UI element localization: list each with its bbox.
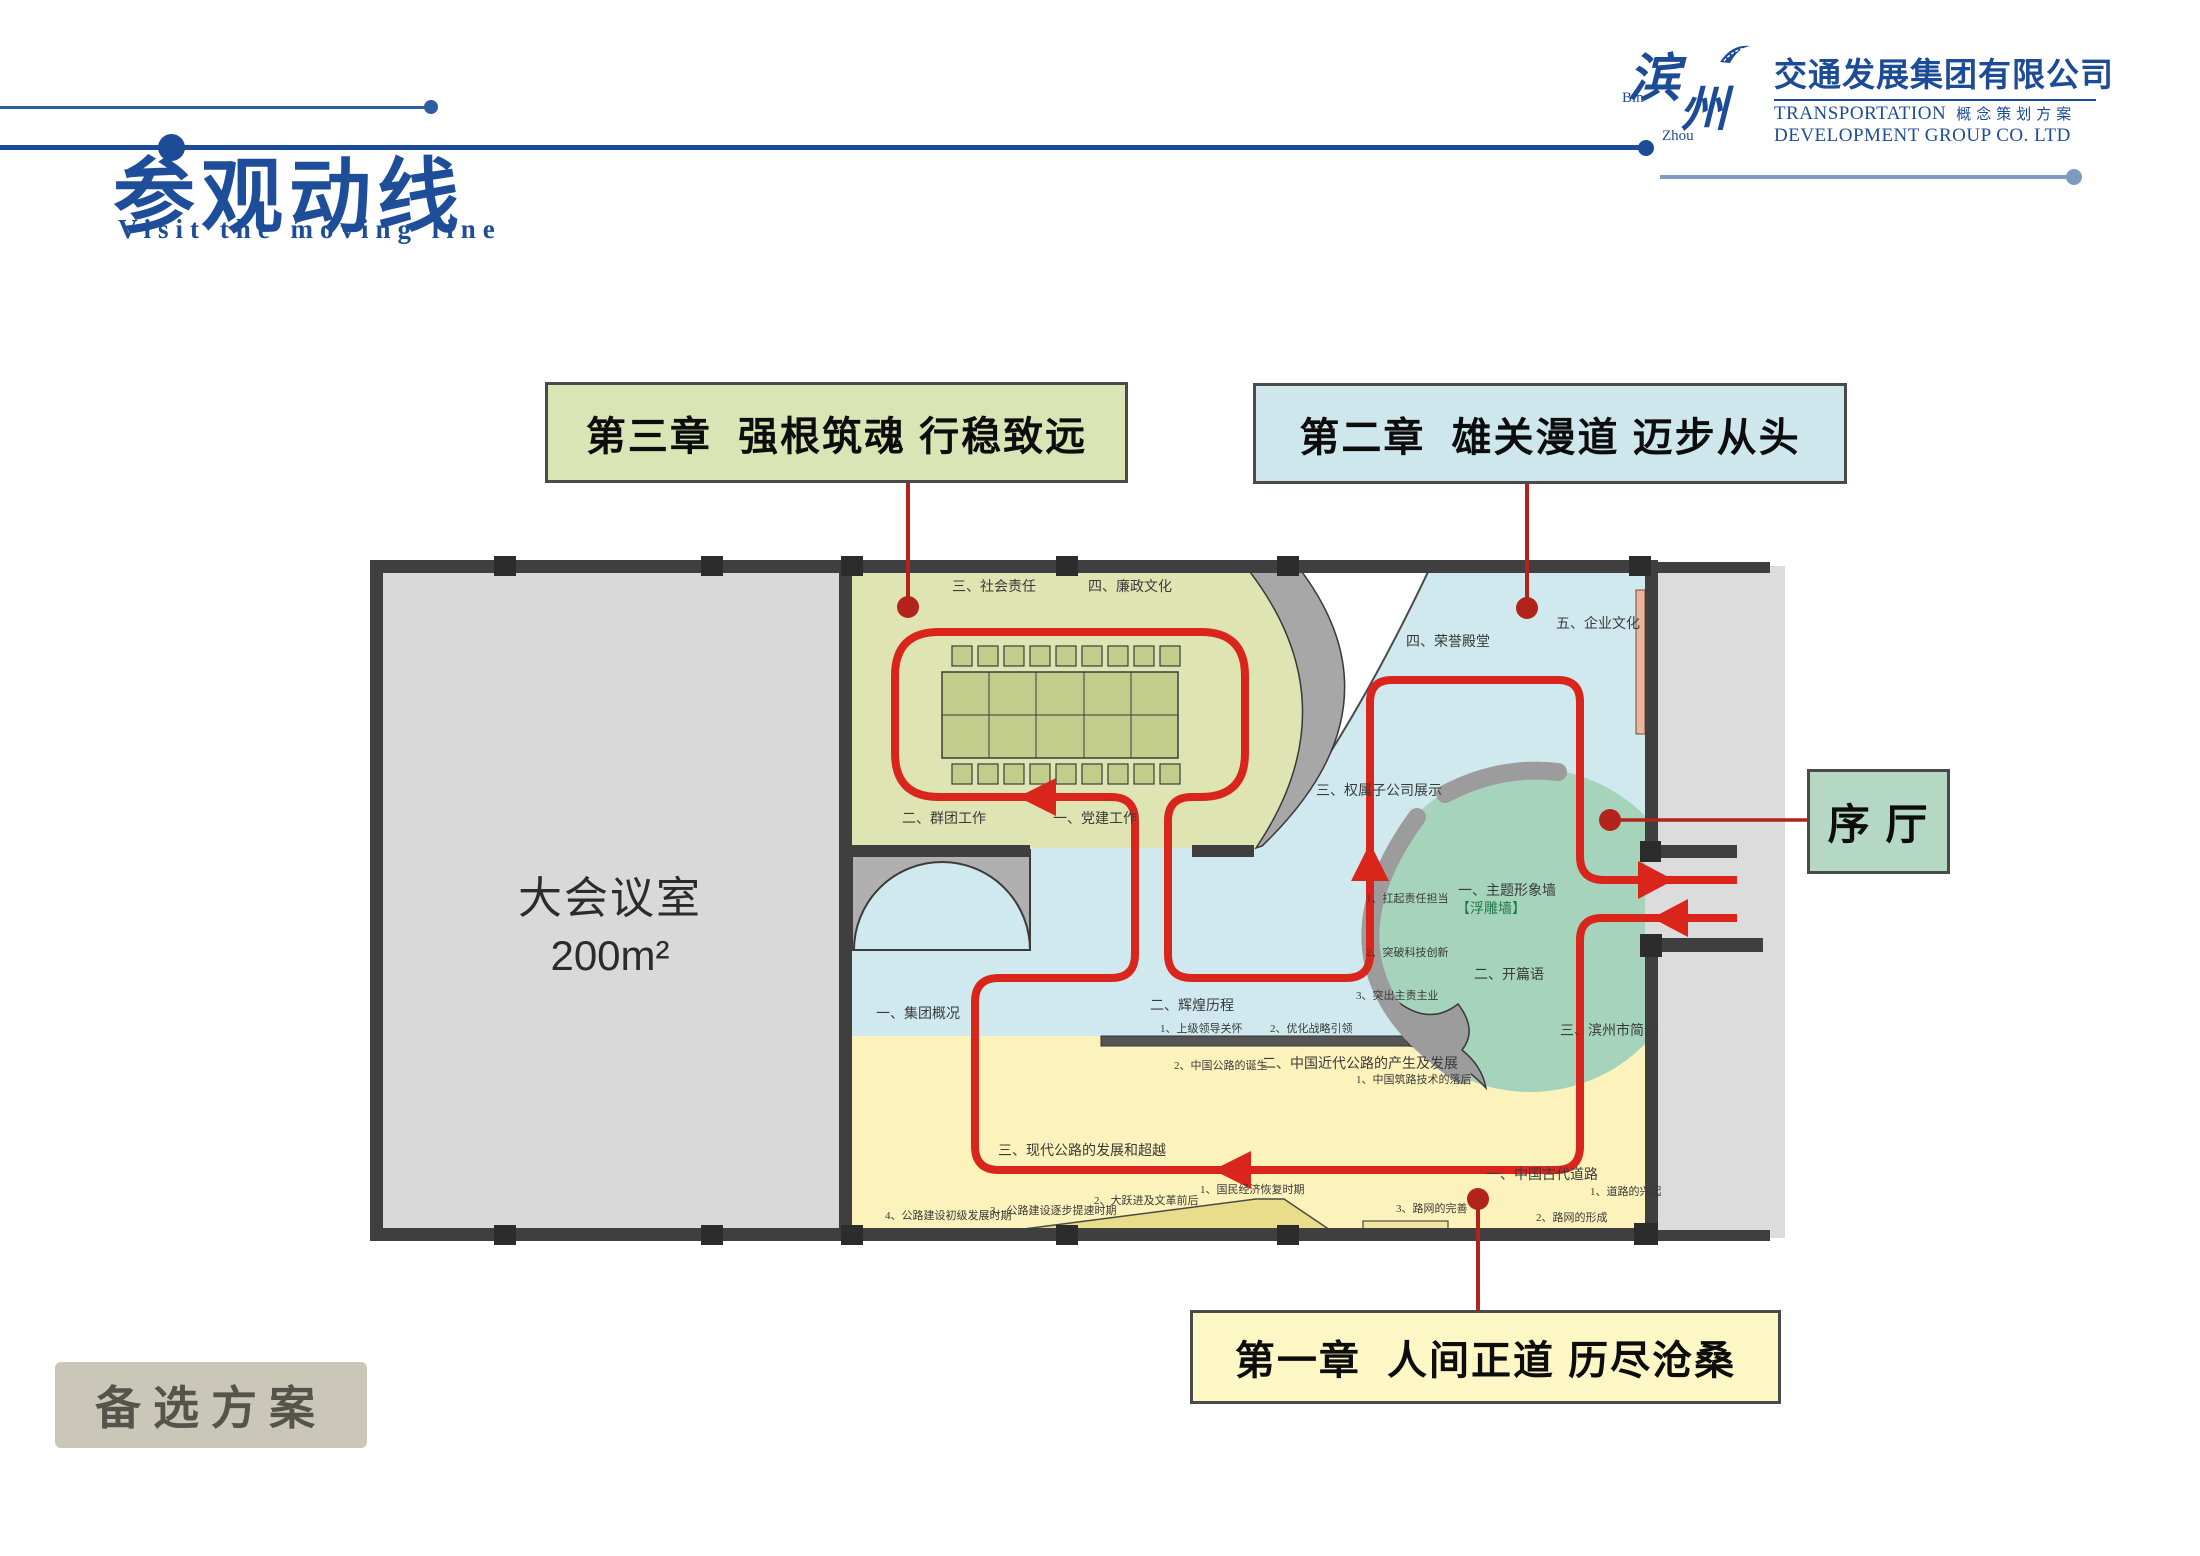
callout-chapter1: 第一章 人间正道 历尽沧桑	[1190, 1310, 1781, 1404]
chair	[1082, 764, 1102, 784]
chair	[1108, 646, 1128, 666]
conference-room-name: 大会议室	[455, 862, 765, 926]
chair	[1030, 646, 1050, 666]
chair	[978, 646, 998, 666]
chair	[1160, 764, 1180, 784]
chair	[1056, 764, 1076, 784]
stage-wall	[1101, 1036, 1411, 1046]
relief-wall-strip	[1636, 590, 1645, 734]
callout-chapter3: 第三章 强根筑魂 行稳致远	[545, 382, 1128, 483]
chair	[1134, 646, 1154, 666]
chair	[1134, 764, 1154, 784]
exterior-corridor	[1645, 566, 1785, 1238]
chair	[1004, 764, 1024, 784]
chair	[952, 764, 972, 784]
chair	[1082, 646, 1102, 666]
conference-room-area: 200m²	[455, 932, 765, 980]
chair	[1030, 764, 1050, 784]
chair	[1108, 764, 1128, 784]
chair	[1056, 646, 1076, 666]
conference-room-label: 大会议室 200m²	[455, 862, 765, 980]
callout-lobby: 序 厅	[1807, 769, 1950, 874]
chair	[978, 764, 998, 784]
chair	[1004, 646, 1024, 666]
chair	[952, 646, 972, 666]
chair	[1160, 646, 1180, 666]
callout-chapter2: 第二章 雄关漫道 迈步从头	[1253, 383, 1847, 484]
